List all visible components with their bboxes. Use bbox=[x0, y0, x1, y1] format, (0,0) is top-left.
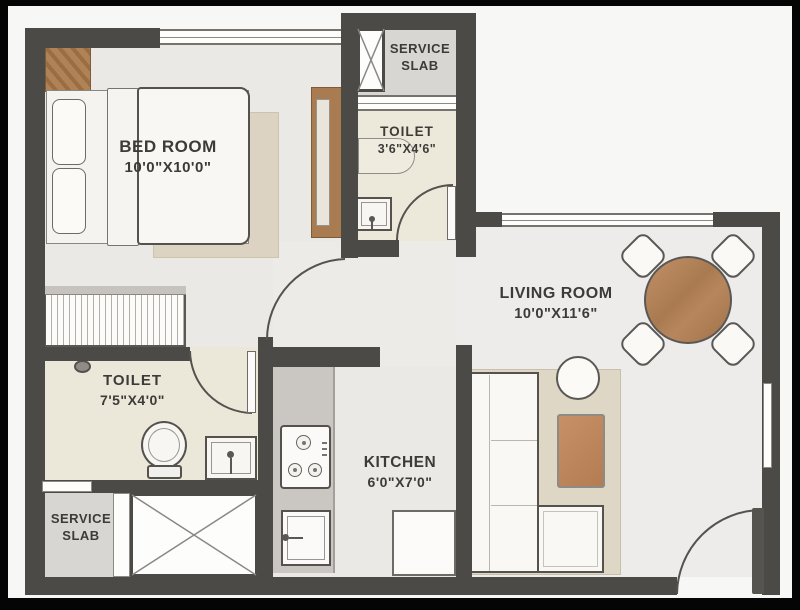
service-slab-bottom-label: SERVICE SLAB bbox=[40, 511, 122, 545]
bedroom-label: BED ROOM 10'0"X10'0" bbox=[58, 136, 278, 178]
room-dims: 3'6"X4'6" bbox=[356, 141, 458, 157]
room-name: TOILET bbox=[356, 123, 458, 141]
room-dims: 6'0"X7'0" bbox=[318, 473, 482, 491]
toilet-top-door bbox=[447, 186, 456, 240]
service-slab-top-label: SERVICE SLAB bbox=[380, 41, 460, 75]
toilet-top-label: TOILET 3'6"X4'6" bbox=[356, 123, 458, 157]
service-slab-text: SERVICE bbox=[40, 511, 122, 528]
room-dims: 7'5"X4'0" bbox=[50, 391, 215, 409]
room-dims: 10'0"X10'0" bbox=[58, 158, 278, 178]
toilet-top-door-arc bbox=[397, 185, 453, 240]
room-name: KITCHEN bbox=[318, 453, 482, 473]
bedroom-door-arc bbox=[267, 259, 345, 340]
living-label: LIVING ROOM 10'0"X11'6" bbox=[446, 284, 666, 324]
toilet-bottom-label: TOILET 7'5"X4'0" bbox=[50, 371, 215, 409]
toilet-bottom-door bbox=[247, 351, 256, 413]
service-slab-text: SLAB bbox=[40, 528, 122, 545]
kitchen-label: KITCHEN 6'0"X7'0" bbox=[318, 453, 482, 491]
duct-cross-icon bbox=[132, 495, 256, 575]
floor-plan-image: BED ROOM 10'0"X10'0" TOILET 3'6"X4'6" SE… bbox=[0, 0, 800, 610]
room-name: BED ROOM bbox=[58, 136, 278, 158]
entrance-door bbox=[752, 508, 764, 594]
room-name: LIVING ROOM bbox=[446, 284, 666, 305]
entrance-door-arc bbox=[677, 510, 762, 594]
room-name: TOILET bbox=[50, 371, 215, 391]
room-dims: 10'0"X11'6" bbox=[446, 305, 666, 324]
service-slab-text: SLAB bbox=[380, 58, 460, 75]
service-slab-text: SERVICE bbox=[380, 41, 460, 58]
